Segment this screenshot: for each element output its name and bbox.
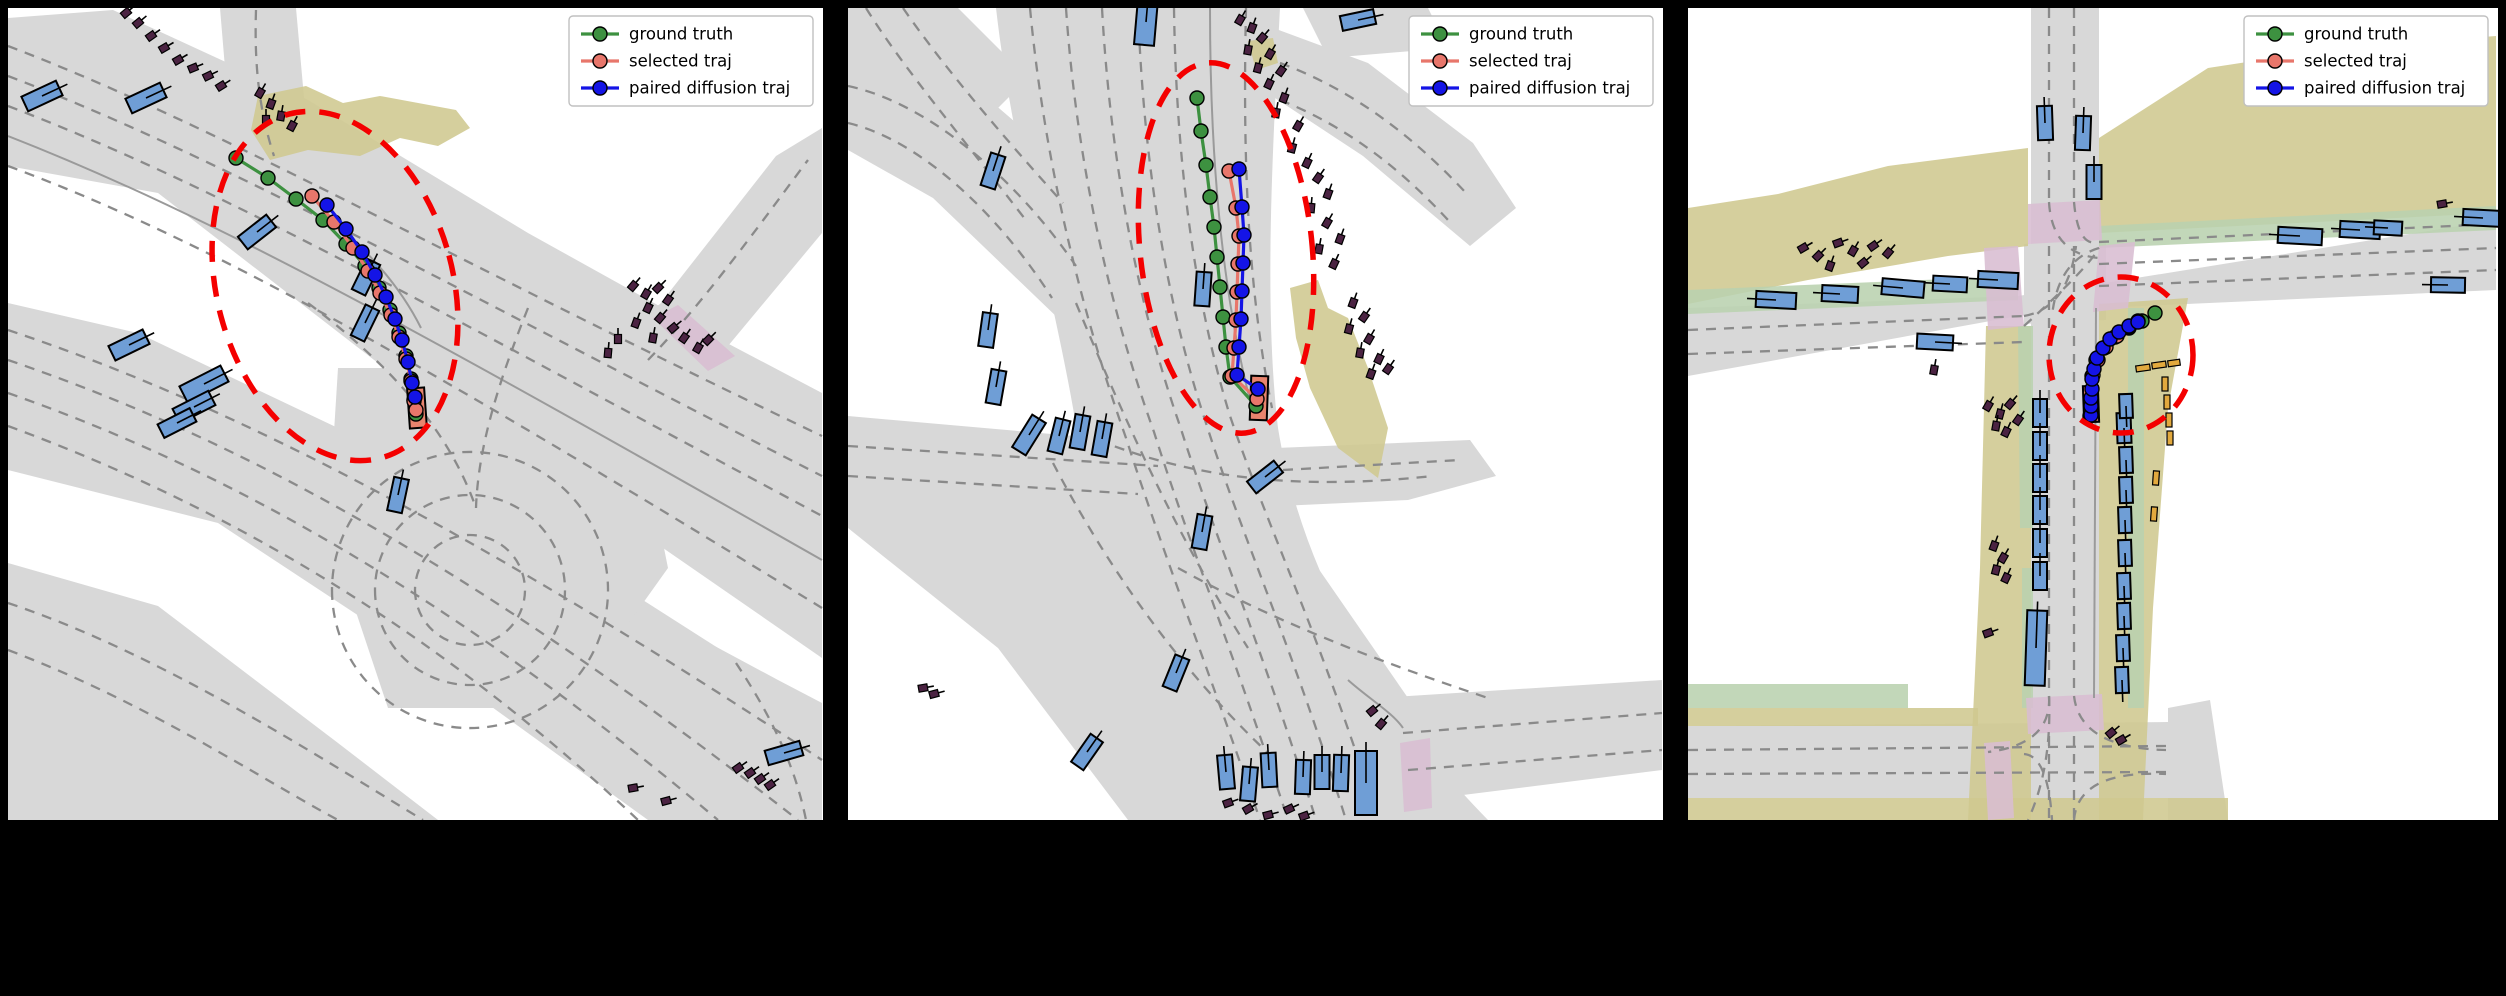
trajectory-point-marker — [1203, 190, 1217, 204]
barrier-object — [2166, 413, 2172, 427]
trajectory-point-marker — [1235, 284, 1249, 298]
barrier-object — [2136, 364, 2151, 372]
trajectory-point-marker — [368, 268, 382, 282]
trajectory-point-marker — [395, 333, 409, 347]
vehicle-box — [1917, 334, 1963, 351]
pedestrian-marker — [1315, 238, 1325, 254]
sidewalk-zone — [251, 86, 470, 160]
pedestrian-marker — [929, 688, 946, 699]
pedestrian-marker — [1302, 152, 1315, 169]
road-surface — [1276, 440, 1496, 506]
trajectory-point-marker — [305, 189, 319, 203]
legend-marker-icon — [593, 27, 607, 41]
scenario-map: ground truthselected trajpaired diffusio… — [8, 8, 823, 820]
legend-marker-icon — [593, 54, 607, 68]
parking-lane-zone — [2018, 326, 2033, 528]
trajectory-figure: ground truthselected trajpaired diffusio… — [0, 0, 2506, 996]
legend-item-selected: selected traj — [1421, 52, 1572, 71]
legend-item-gt: ground truth — [581, 25, 733, 44]
pedestrian-marker — [1313, 167, 1328, 184]
parking-lane-zone — [1688, 684, 1908, 708]
trajectory-point-marker — [1190, 91, 1204, 105]
trajectory-point-marker — [289, 192, 303, 206]
barrier-object — [2162, 377, 2168, 391]
trajectory-point-marker — [1236, 256, 1250, 270]
trajectory-point-marker — [1232, 340, 1246, 354]
trajectory-point-marker — [2148, 306, 2162, 320]
trajectory-point-marker — [1237, 228, 1251, 242]
legend-item-selected: selected traj — [581, 52, 732, 71]
trajectory-point-marker — [355, 245, 369, 259]
legend-label: selected traj — [1469, 52, 1572, 71]
legend-label: ground truth — [629, 25, 733, 44]
pedestrian-marker — [1383, 358, 1398, 375]
scenario-panel-3: ground truthselected trajpaired diffusio… — [1688, 8, 2498, 820]
pedestrian-marker — [652, 278, 668, 294]
trajectory-point-marker — [2131, 315, 2145, 329]
trajectory-point-marker — [1199, 158, 1213, 172]
vehicle-box — [1355, 742, 1377, 815]
legend-marker-icon — [1433, 54, 1447, 68]
trajectory-point-marker — [320, 198, 334, 212]
scenario-panel-1: ground truthselected trajpaired diffusio… — [8, 8, 823, 820]
trajectory-point-marker — [405, 376, 419, 390]
legend-label: paired diffusion traj — [629, 79, 790, 98]
trajectory-point-marker — [1230, 368, 1244, 382]
barrier-object — [2167, 431, 2173, 445]
legend-label: selected traj — [2304, 52, 2407, 71]
barrier-object — [2151, 507, 2158, 521]
legend-item-gt: ground truth — [1421, 25, 1573, 44]
legend-label: paired diffusion traj — [2304, 79, 2465, 98]
pedestrian-marker — [641, 283, 655, 300]
vehicle-box — [986, 360, 1008, 405]
legend-item-selected: selected traj — [2256, 52, 2407, 71]
trajectory-point-marker — [1210, 250, 1224, 264]
trajectory-point-marker — [261, 171, 275, 185]
legend-marker-icon — [2268, 81, 2282, 95]
trajectory-point-marker — [379, 290, 393, 304]
vehicle-box — [2025, 601, 2048, 686]
vehicle-box — [1134, 8, 1159, 46]
pedestrian-marker — [1359, 306, 1374, 323]
trajectory-point-marker — [409, 403, 423, 417]
barrier-object — [2153, 471, 2160, 485]
legend-marker-icon — [2268, 27, 2282, 41]
legend-label: selected traj — [629, 52, 732, 71]
barrier-object — [2152, 361, 2167, 369]
barrier-object — [2164, 395, 2170, 409]
sidewalk-zone — [1688, 798, 2228, 820]
legend: ground truthselected trajpaired diffusio… — [1409, 16, 1653, 106]
trajectory-point-marker — [339, 222, 353, 236]
crosswalk-zone — [1400, 738, 1432, 812]
pedestrian-marker — [1348, 291, 1360, 308]
legend-marker-icon — [593, 81, 607, 95]
legend-label: ground truth — [1469, 25, 1573, 44]
legend: ground truthselected trajpaired diffusio… — [569, 16, 813, 106]
trajectory-point-marker — [388, 312, 402, 326]
trajectory-point-marker — [1216, 310, 1230, 324]
trajectory-point-marker — [1232, 162, 1246, 176]
pedestrian-marker — [1329, 253, 1342, 270]
pedestrian-marker — [1374, 348, 1387, 365]
trajectory-point-marker — [401, 355, 415, 369]
trajectory-point-marker — [1213, 280, 1227, 294]
trajectory-point-marker — [1194, 124, 1208, 138]
trajectory-point-marker — [1234, 312, 1248, 326]
legend-marker-icon — [1433, 81, 1447, 95]
trajectory-point-marker — [1251, 382, 1265, 396]
pedestrian-marker — [627, 275, 642, 291]
scenario-map: ground truthselected trajpaired diffusio… — [848, 8, 1663, 820]
pedestrian-marker — [1323, 182, 1335, 199]
legend-item-gt: ground truth — [2256, 25, 2408, 44]
crosswalk-zone — [2028, 200, 2102, 244]
scenario-panel-2: ground truthselected trajpaired diffusio… — [848, 8, 1663, 820]
legend-label: paired diffusion traj — [1469, 79, 1630, 98]
pedestrian-marker — [1322, 212, 1336, 229]
legend-marker-icon — [1433, 27, 1447, 41]
pedestrian-marker — [1364, 328, 1378, 345]
pedestrian-marker — [1335, 227, 1347, 244]
legend: ground truthselected trajpaired diffusio… — [2244, 16, 2488, 106]
pedestrian-marker — [120, 8, 136, 19]
vehicle-box — [978, 303, 999, 348]
crosswalk-zone — [2026, 694, 2104, 734]
barrier-object — [2168, 359, 2181, 367]
pedestrian-marker — [1366, 362, 1378, 379]
trajectory-point-marker — [408, 390, 422, 404]
sidewalk-zone — [1688, 708, 1978, 726]
pedestrian-marker — [1930, 359, 1940, 375]
legend-label: ground truth — [2304, 25, 2408, 44]
trajectory-point-marker — [1235, 200, 1249, 214]
scenario-map: ground truthselected trajpaired diffusio… — [1688, 8, 2498, 820]
legend-marker-icon — [2268, 54, 2282, 68]
trajectory-point-marker — [1207, 220, 1221, 234]
